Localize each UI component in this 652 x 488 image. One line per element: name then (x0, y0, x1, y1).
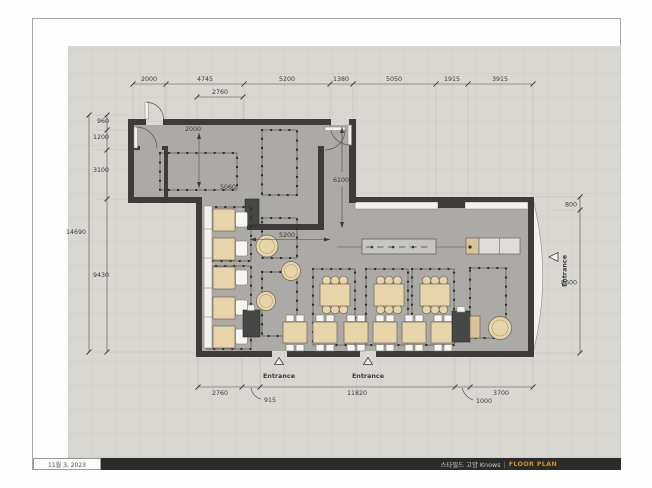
dim-top-3: 5200 (279, 76, 295, 83)
dim-bottom-3: 3700 (493, 390, 509, 397)
dim-kitchen-depth: 2000 (185, 126, 201, 133)
dim-left-1: 960 (97, 118, 109, 125)
document-type: FLOOR PLAN (509, 460, 557, 468)
title-separator: | (504, 460, 506, 468)
wall-jut (438, 197, 465, 208)
dim-left-3: 3100 (93, 167, 109, 174)
dim-bottom-1: 2760 (212, 390, 228, 397)
banquette-seating (204, 206, 212, 348)
entrance-label-right: Entrance (561, 254, 569, 287)
service-counter-wood (466, 238, 479, 254)
six-seat-tables (320, 276, 450, 314)
dim-top-1: 2000 (141, 76, 157, 83)
floor-plan: 2000 4745 5200 1380 5050 1915 3915 2760 … (0, 0, 652, 488)
date-box: 11월 3, 2023 (33, 458, 101, 470)
dim-island: 5060 (220, 184, 236, 191)
dim-bay: 5200 (279, 232, 295, 239)
dimension-chain-right: 800 8600 Entrance (549, 195, 583, 356)
dim-top-2: 4745 (197, 76, 213, 83)
project-title: 스타필드 고양 Knows (441, 460, 501, 469)
table-row (420, 276, 450, 314)
dim-left-overall: 14690 (66, 229, 86, 236)
entrance-arrow-bottom-2 (364, 358, 373, 365)
dim-left-2: 1200 (93, 134, 109, 141)
side-counter (470, 316, 480, 338)
dimension-chain-top: 2000 4745 5200 1380 5050 1915 3915 2760 (131, 76, 536, 100)
door-leaf-top-right (348, 125, 352, 145)
dim-top-6: 1915 (444, 76, 460, 83)
entrance-arrow-bottom-1 (275, 358, 284, 365)
table-row (374, 276, 404, 314)
dim-leader-1000: 1000 (476, 398, 492, 405)
dim-leader-915: 915 (264, 397, 276, 404)
dim-top-7: 3915 (492, 76, 508, 83)
dim-left-4: 9430 (93, 272, 109, 279)
entrance-label-bottom-2: Entrance (352, 372, 385, 380)
dim-top-secondary: 2760 (212, 89, 228, 96)
pos-station-right (452, 311, 470, 342)
table-row (320, 276, 350, 314)
kitchen-partition-vertical (318, 146, 324, 230)
door-swing-top-left (147, 103, 164, 120)
drawing-sheet: 2000 4745 5200 1380 5050 1915 3915 2760 … (0, 0, 652, 488)
window-band-left (355, 202, 438, 209)
door-leaf-top-left (145, 102, 149, 119)
dim-top-4: 1380 (333, 76, 349, 83)
entrance-markers-bottom: Entrance Entrance (263, 358, 385, 381)
dim-hall: 6100 (333, 177, 349, 184)
door-leaf-small-room (134, 127, 138, 148)
pos-station-left (243, 310, 260, 337)
sheet-date: 11월 3, 2023 (48, 460, 86, 469)
title-block: 11월 3, 2023 스타필드 고양 Knows | FLOOR PLAN (33, 458, 621, 470)
dim-bottom-2: 11820 (347, 390, 367, 397)
dimension-chain-bottom: 2760 11820 3700 915 1000 (196, 385, 536, 406)
dimension-chain-left: 14690 960 1200 3100 9430 (66, 113, 110, 355)
dim-right-1: 800 (565, 202, 577, 209)
small-room-wall-right (164, 146, 168, 203)
entrance-label-bottom-1: Entrance (263, 372, 296, 380)
entrance-arrow-right (549, 253, 558, 262)
window-band-right (465, 202, 528, 209)
curved-glass-entrance (533, 199, 543, 353)
title-bar: 스타필드 고양 Knows | FLOOR PLAN (101, 458, 621, 470)
dim-top-5: 5050 (386, 76, 402, 83)
